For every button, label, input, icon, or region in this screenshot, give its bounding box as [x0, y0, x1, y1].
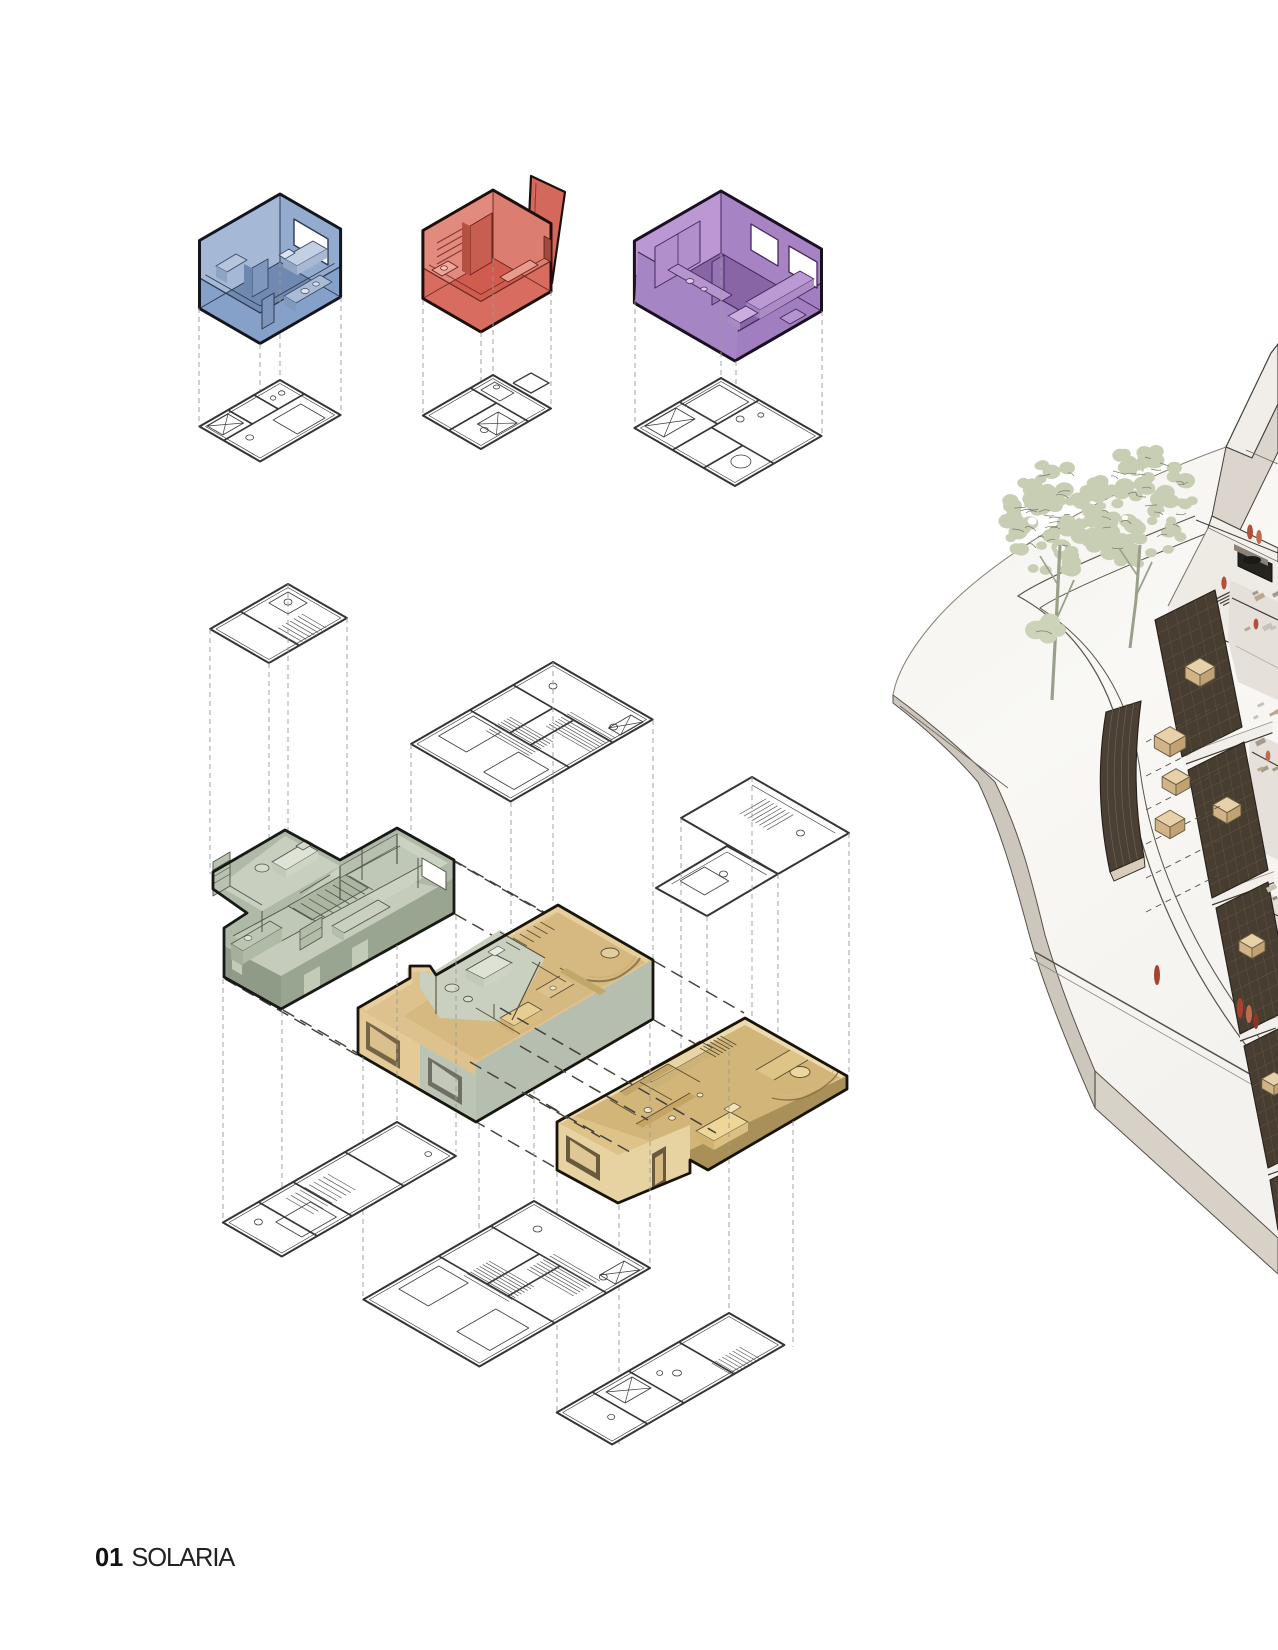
svg-text:01SOLARIA: 01SOLARIA — [95, 1544, 235, 1572]
